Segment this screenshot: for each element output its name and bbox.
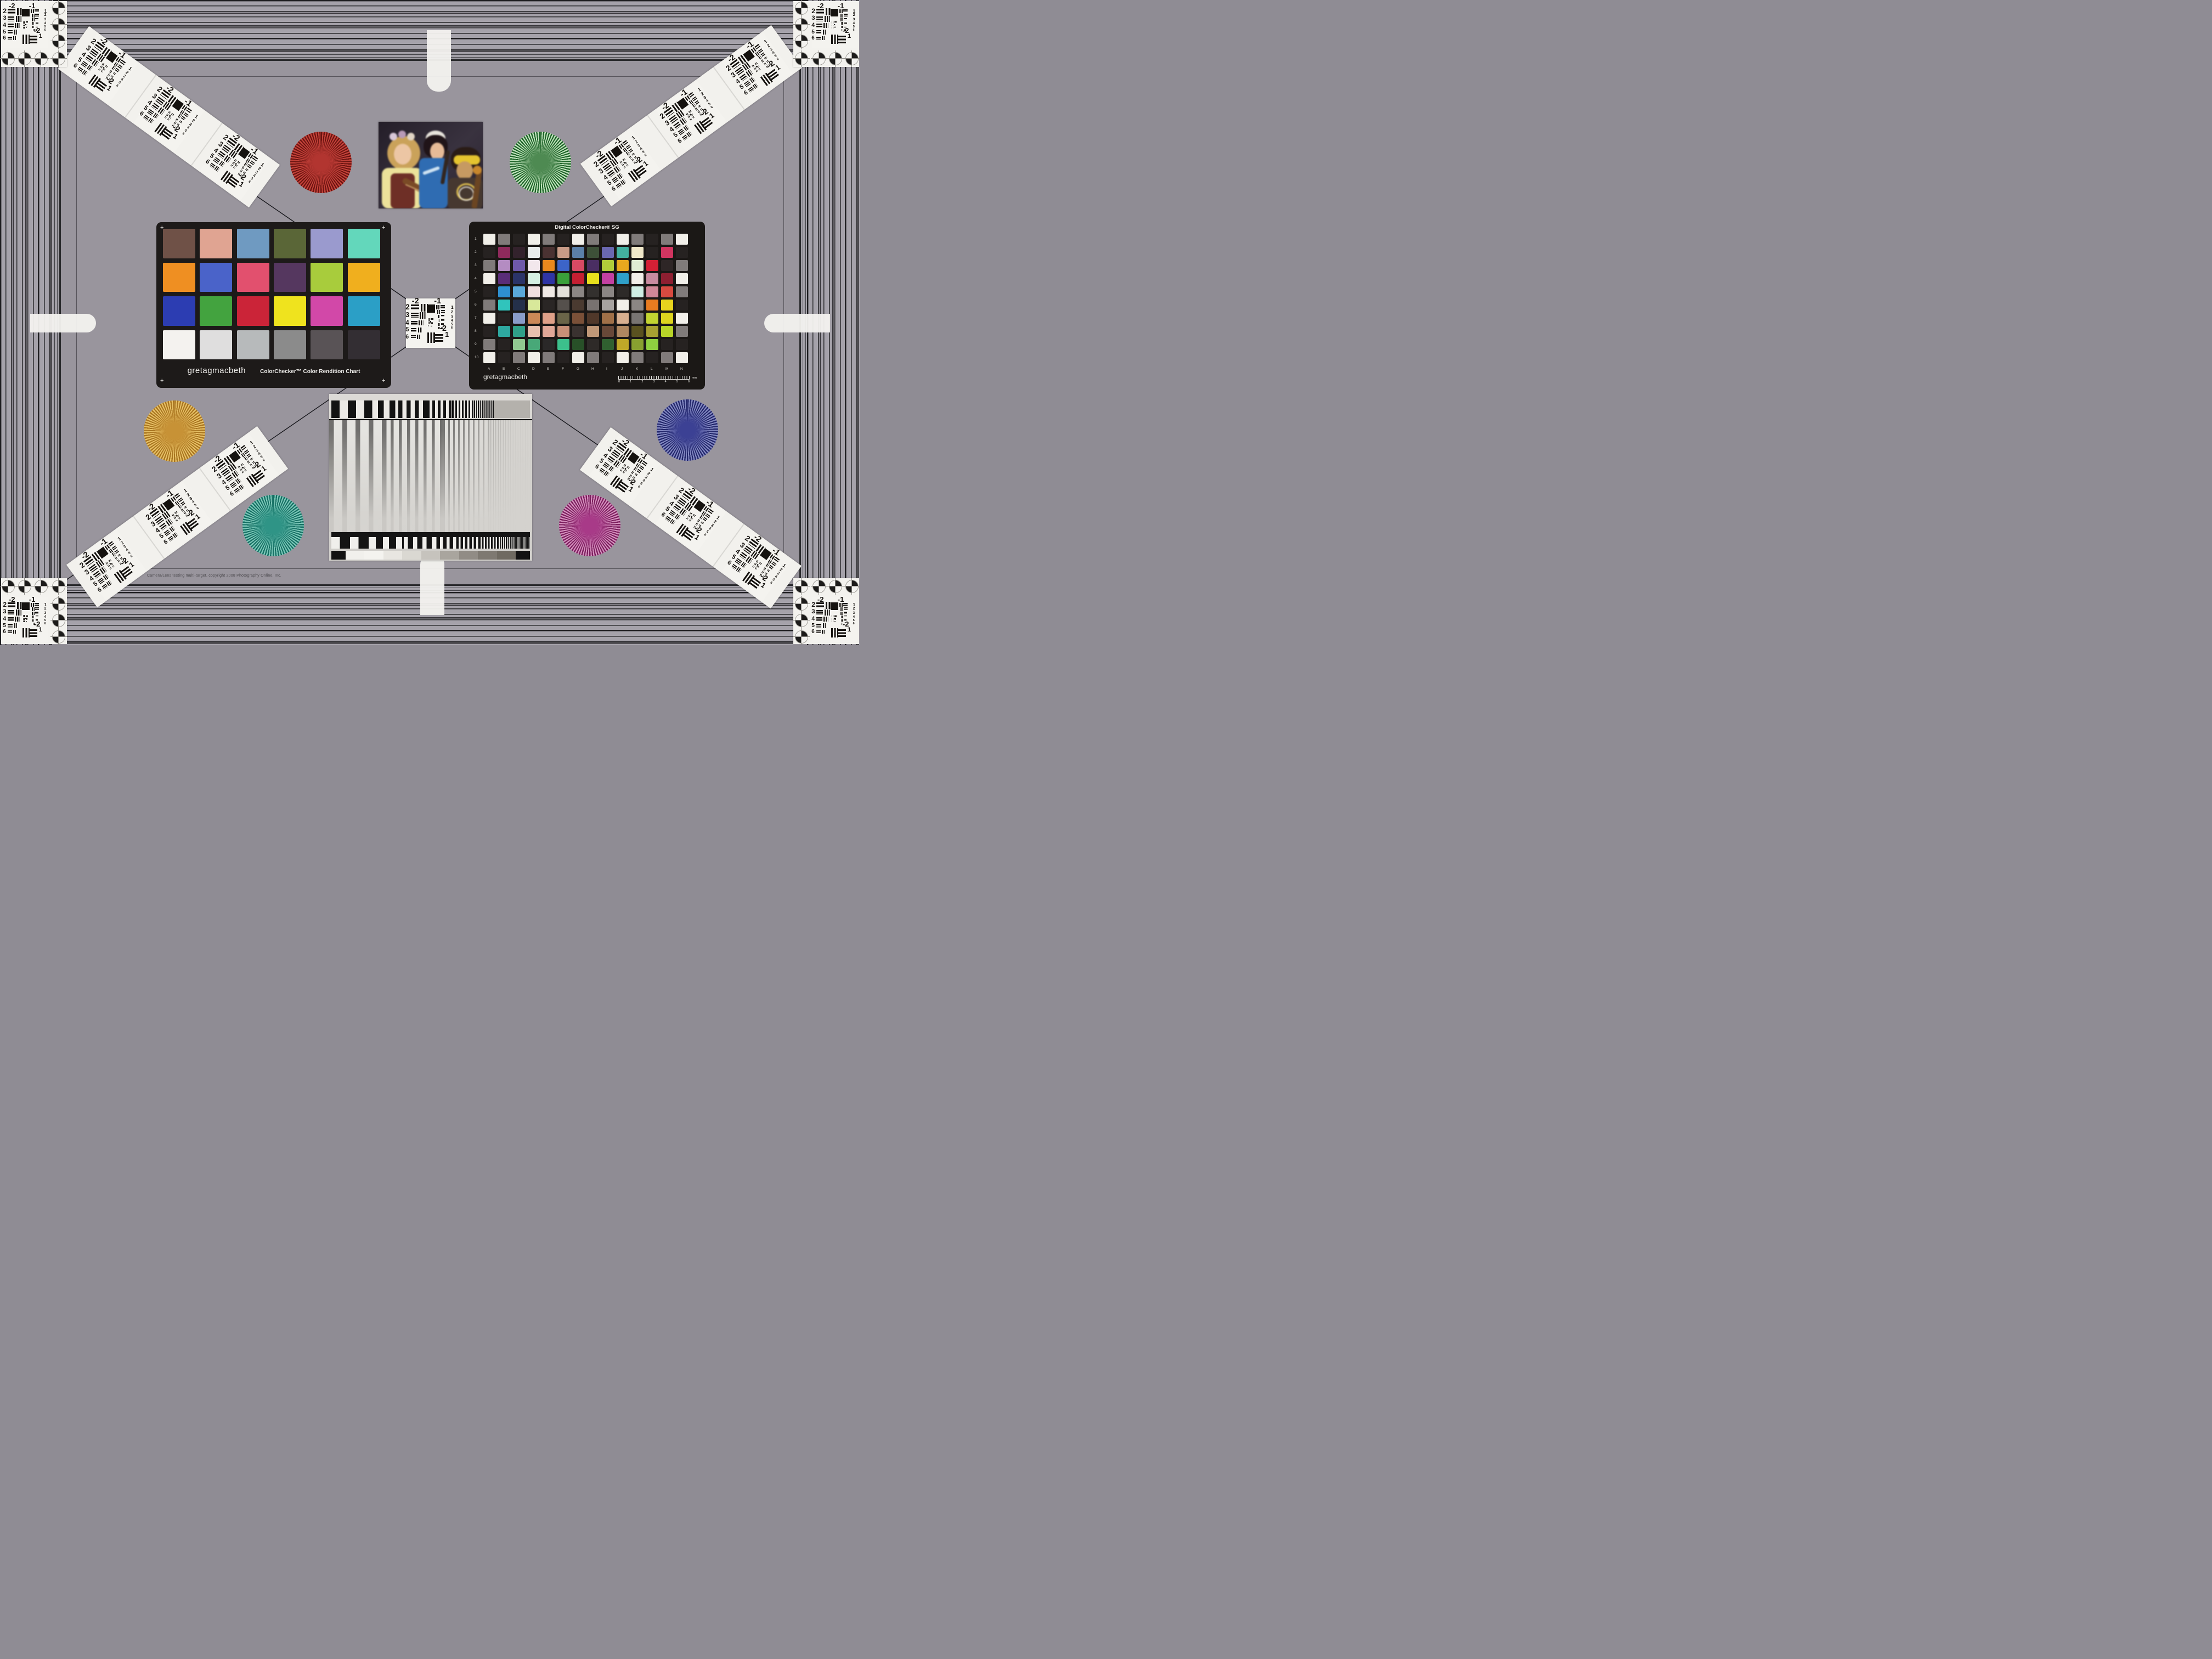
gray-step [440, 551, 459, 560]
fiducial-circle-icon [2, 53, 14, 65]
bar-group [233, 166, 235, 168]
gray-step [402, 551, 421, 560]
sg-color-patch [528, 234, 540, 245]
sg-color-patch [661, 339, 673, 350]
bar-group [36, 22, 38, 24]
bar-group [36, 616, 38, 618]
sg-color-patch [676, 286, 688, 297]
color-patch [311, 296, 343, 326]
usaf-number: 5 [405, 327, 409, 333]
sg-col-label: C [517, 368, 520, 371]
usaf-resolution-target: -2-123456123456-21 [3, 3, 48, 48]
bar-group [222, 144, 231, 153]
bar-group [757, 65, 759, 68]
usaf-number: 5 [3, 623, 6, 629]
colorchecker-sg-chart: Digital ColorChecker® SG gretagmacbeth 0… [469, 222, 705, 390]
bar-group [164, 529, 171, 536]
bar-group [611, 449, 620, 458]
bar-group [834, 618, 836, 620]
sg-color-patch [617, 234, 629, 245]
sg-color-patch [557, 234, 569, 245]
gray-step [331, 551, 346, 560]
usaf-number: 6 [637, 485, 640, 489]
bar-group [23, 620, 24, 622]
usaf-number: 6 [776, 58, 780, 61]
bar-group [678, 128, 685, 135]
bar-group [33, 623, 35, 625]
bar-group [823, 623, 827, 628]
sg-color-patch [617, 273, 629, 284]
usaf-resolution-target: -2-123456123456-21 [812, 597, 857, 642]
sg-color-patch [543, 300, 555, 311]
bar-group [736, 567, 741, 573]
fiducial-circle-icon [813, 53, 825, 65]
sg-color-patch [676, 339, 688, 350]
sg-col-label: K [636, 368, 638, 371]
sg-color-patch [617, 260, 629, 271]
sg-title-label: Digital ColorChecker® SG [469, 224, 705, 230]
bar-group [823, 23, 828, 28]
sg-col-label: E [547, 368, 549, 371]
bar-group [23, 25, 25, 26]
usaf-number: 3 [3, 15, 6, 21]
bar-group [832, 25, 833, 26]
bar-group [155, 516, 164, 524]
black-square [22, 602, 30, 610]
sg-color-patch [676, 260, 688, 271]
bar-group [832, 620, 833, 622]
usaf-number: 6 [44, 623, 46, 625]
sg-color-patch [631, 273, 644, 284]
bar-group [36, 29, 38, 31]
sg-color-patch [557, 260, 569, 271]
sg-color-patch [661, 352, 673, 363]
bar-group [759, 562, 762, 565]
sg-color-patch [572, 234, 584, 245]
bar-group [441, 319, 444, 321]
color-patch [237, 296, 269, 326]
magenta-siemens-star [559, 495, 620, 556]
black-square [831, 9, 838, 16]
usaf-number: 6 [196, 506, 200, 510]
usaf-number: 1 [848, 627, 851, 633]
sg-row-label: 7 [475, 317, 477, 320]
sg-color-patch [498, 286, 510, 297]
sg-color-patch [676, 234, 688, 245]
bar-group [178, 517, 180, 520]
bar-group [178, 498, 183, 503]
bar-group [832, 618, 833, 620]
bar-group [825, 610, 830, 616]
sg-color-patch [602, 339, 614, 350]
bar-group [31, 9, 34, 13]
sg-color-patch [498, 273, 510, 284]
bar-group [115, 550, 119, 554]
usaf-number: 4 [811, 616, 815, 622]
bar-group [613, 166, 620, 173]
bar-group [740, 552, 748, 560]
bar-group [669, 115, 678, 123]
bar-group [639, 465, 644, 470]
bar-group [834, 21, 837, 23]
sg-color-patch [513, 339, 525, 350]
bar-group [160, 523, 168, 531]
center-usaf-resolution-target: -2-123456123456-21 [406, 298, 455, 348]
bar-group [110, 563, 113, 566]
copyright-note: Camera/Lens testing multi-target, copyri… [147, 574, 281, 578]
bar-group [678, 498, 687, 506]
sg-color-patch [572, 260, 584, 271]
bar-group [35, 612, 38, 614]
bar-group [419, 320, 424, 326]
bar-group [758, 68, 760, 70]
sg-color-patch [602, 352, 614, 363]
sg-color-patch [602, 273, 614, 284]
bar-group [679, 509, 686, 516]
usaf-number: 2 [405, 303, 410, 311]
sg-color-patch [483, 313, 495, 324]
corner-registration-card: -2-123456123456-21 [1, 1, 67, 67]
bar-group [844, 29, 847, 31]
bar-group [32, 14, 35, 18]
bar-group [674, 514, 680, 521]
bar-group [420, 312, 426, 319]
portrait-test-photo [379, 122, 483, 208]
sg-color-patch [557, 273, 569, 284]
sg-color-patch [631, 313, 644, 324]
bar-group [673, 504, 681, 512]
sg-col-label: N [680, 368, 683, 371]
sg-color-patch [513, 326, 525, 337]
bar-group [698, 104, 702, 108]
bar-group [240, 463, 244, 466]
sg-row-label: 5 [475, 290, 477, 294]
bar-group [35, 9, 38, 13]
bar-group [838, 629, 847, 637]
sg-color-patch [631, 260, 644, 271]
bar-group [823, 617, 828, 622]
bar-group [147, 109, 154, 116]
sg-color-patch [483, 247, 495, 258]
bar-group [8, 630, 12, 634]
sg-color-patch [602, 313, 614, 324]
bar-group [120, 60, 126, 65]
color-patch [311, 330, 343, 360]
bar-group [701, 521, 704, 525]
bar-group [624, 469, 627, 472]
sg-color-patch [587, 300, 599, 311]
ruler-number: 0 [618, 380, 620, 383]
color-patch [200, 229, 232, 258]
usaf-number: 3 [405, 312, 409, 319]
bar-group [616, 183, 622, 189]
gray-step [383, 551, 402, 560]
bar-group [165, 116, 167, 119]
sg-color-patch [676, 247, 688, 258]
bar-group [168, 116, 171, 119]
bar-group [214, 166, 219, 172]
color-patch [237, 229, 269, 258]
usaf-number: 6 [3, 36, 5, 41]
color-patch [163, 229, 195, 258]
usaf-number: 6 [703, 533, 707, 537]
usaf-number: 6 [769, 581, 772, 585]
bar-group [735, 558, 742, 565]
bar-group [703, 517, 707, 522]
bar-group [221, 467, 230, 476]
bar-group [761, 53, 765, 57]
bar-group [35, 607, 39, 610]
fiducial-circle-icon [35, 53, 47, 65]
usaf-number: 5 [3, 30, 6, 35]
sg-color-patch [676, 352, 688, 363]
fiducial-circle-icon [795, 614, 808, 627]
sg-color-patch [557, 313, 569, 324]
bar-group [840, 14, 843, 18]
bar-group [757, 565, 759, 568]
bar-group [157, 108, 165, 115]
sg-col-label: A [488, 368, 490, 371]
sg-color-patch [528, 273, 540, 284]
sg-color-patch [661, 273, 673, 284]
bar-group [87, 65, 93, 71]
usaf-number: -1 [838, 596, 844, 603]
bar-group [26, 618, 27, 620]
sg-color-patch [631, 234, 644, 245]
sg-color-patch [602, 326, 614, 337]
bar-group [8, 9, 15, 15]
usaf-number: 1 [39, 33, 42, 39]
usaf-number: 6 [130, 555, 133, 558]
bar-group [613, 460, 620, 468]
gray-step [478, 551, 496, 560]
bar-group [26, 27, 27, 29]
sweep-segment [398, 400, 427, 418]
fiducial-circle-icon [846, 53, 858, 65]
sg-col-label: I [606, 368, 607, 371]
usaf-number: 6 [262, 459, 266, 462]
bar-group [840, 612, 843, 615]
sg-color-patch [543, 247, 555, 258]
usaf-number: -1 [29, 596, 36, 603]
bar-group [434, 334, 443, 342]
sweep-segment [427, 400, 452, 418]
bar-group [741, 562, 747, 568]
sg-color-patch [543, 260, 555, 271]
ruler-unit-label: mm [692, 376, 697, 380]
bar-group [816, 630, 821, 634]
usaf-number: 1 [848, 33, 851, 39]
bar-group [88, 563, 98, 572]
bar-group [695, 100, 699, 105]
bar-group [247, 164, 252, 168]
bar-group [637, 469, 641, 473]
bar-group [620, 469, 622, 471]
bar-group [156, 97, 165, 105]
sg-color-patch [587, 313, 599, 324]
sg-color-patch [587, 352, 599, 363]
sg-color-patch [528, 247, 540, 258]
bar-group [839, 603, 843, 607]
sg-color-patch [498, 300, 510, 311]
sg-color-patch [661, 286, 673, 297]
bar-group [218, 151, 226, 159]
bar-group [167, 118, 169, 120]
bar-group [756, 70, 758, 72]
bar-group [35, 14, 39, 16]
bar-group [669, 510, 676, 517]
sweep-segment [452, 400, 474, 418]
usaf-number: 6 [451, 327, 453, 330]
bar-group [230, 482, 237, 488]
teal-siemens-star [242, 495, 304, 556]
bar-group [816, 30, 821, 34]
bar-group [224, 155, 231, 163]
bar-group [690, 517, 693, 520]
sg-color-patch [543, 313, 555, 324]
sg-color-patch [543, 273, 555, 284]
bar-group [612, 177, 619, 183]
bar-group [844, 26, 847, 27]
color-patch [274, 330, 306, 360]
sg-color-patch [572, 247, 584, 258]
bar-group [441, 323, 444, 325]
sg-color-patch [513, 300, 525, 311]
sg-color-patch [631, 247, 644, 258]
color-patch [348, 296, 380, 326]
ruler-ticks [618, 376, 690, 380]
bar-group [841, 619, 843, 622]
sg-color-patch [543, 352, 555, 363]
bar-group [431, 318, 433, 320]
sg-color-patch [661, 234, 673, 245]
photo-figures [379, 122, 483, 208]
fiducial-circle-icon [53, 53, 65, 65]
bar-group [438, 327, 440, 329]
sg-color-patch [617, 313, 629, 324]
bar-group [115, 68, 120, 72]
sweep-segment [331, 400, 366, 418]
bar-group [23, 27, 24, 29]
bar-group [179, 120, 183, 124]
green-siemens-star [510, 132, 571, 193]
fiducial-circle-icon [2, 580, 14, 592]
bar-group [15, 23, 19, 28]
sg-col-label: M [665, 368, 668, 371]
bar-group [822, 36, 825, 40]
usaf-number: 5 [811, 623, 815, 629]
usaf-number: -1 [838, 2, 844, 9]
sweep-segment-flat [494, 400, 530, 418]
usaf-number: 6 [811, 629, 814, 635]
bar-group [689, 92, 694, 98]
sg-color-patch [587, 234, 599, 245]
sg-color-patch [513, 313, 525, 324]
sg-color-patch [661, 326, 673, 337]
bar-group [14, 30, 18, 34]
bar-group [428, 325, 430, 326]
bar-group [102, 584, 108, 590]
sg-color-patch [676, 273, 688, 284]
sg-color-patch [646, 234, 658, 245]
bar-group [841, 26, 843, 28]
color-patch [274, 296, 306, 326]
usaf-number: 4 [3, 22, 6, 29]
bar-group [98, 578, 105, 584]
bar-group [682, 134, 688, 140]
bar-group [438, 315, 441, 318]
bar-group [108, 541, 114, 546]
sg-row-label: 3 [475, 264, 477, 268]
bar-group [252, 156, 258, 161]
bar-group [112, 72, 116, 76]
usaf-number: 4 [3, 616, 6, 622]
bar-group [31, 603, 34, 607]
fiducial-circle-icon [795, 53, 808, 65]
fiducial-circle-icon [53, 2, 65, 14]
sg-color-patch [661, 300, 673, 311]
fiducial-circle-icon [53, 598, 65, 610]
red-siemens-star [290, 132, 352, 193]
sg-color-patch [631, 300, 644, 311]
bar-group [417, 335, 420, 339]
bar-group [36, 623, 38, 624]
bar-group [602, 162, 612, 171]
bar-group [8, 16, 14, 21]
sg-color-patch [543, 326, 555, 337]
bar-group [735, 66, 744, 75]
sg-color-patch [528, 352, 540, 363]
ruler-number: 1 [630, 380, 631, 383]
sg-color-patch [528, 286, 540, 297]
bar-group [832, 27, 833, 29]
sg-color-patch [483, 273, 495, 284]
fiducial-circle-icon [53, 19, 65, 31]
sg-col-label: B [503, 368, 505, 371]
gray-step [516, 551, 530, 560]
gretagmacbeth-brand-label: gretagmacbeth [188, 366, 246, 375]
fiducial-circle-icon [795, 2, 808, 14]
bar-group [746, 70, 753, 77]
sg-color-patch [646, 300, 658, 311]
bar-group [153, 113, 159, 120]
bar-group [36, 619, 38, 621]
bar-group [23, 21, 25, 24]
sg-color-patch [483, 352, 495, 363]
bar-group [838, 36, 847, 43]
bar-group [184, 505, 188, 509]
usaf-number: 6 [853, 623, 855, 625]
bar-group [35, 603, 38, 606]
sg-color-patch [676, 300, 688, 311]
bar-group [92, 59, 99, 67]
color-patch [274, 229, 306, 258]
usaf-number: 3 [451, 315, 453, 319]
sg-row-label: 4 [475, 277, 477, 281]
sg-color-patch [572, 300, 584, 311]
usaf-number: 6 [97, 587, 103, 594]
bar-group [764, 57, 768, 60]
usaf-number: -1 [434, 297, 441, 305]
sg-color-patch [498, 339, 510, 350]
sg-color-patch [528, 260, 540, 271]
bar-group [8, 624, 13, 628]
bar-group [834, 27, 836, 29]
bar-group [816, 624, 821, 628]
sg-row-label: 6 [475, 303, 477, 307]
bar-group [213, 157, 221, 163]
sg-col-label: F [562, 368, 564, 371]
